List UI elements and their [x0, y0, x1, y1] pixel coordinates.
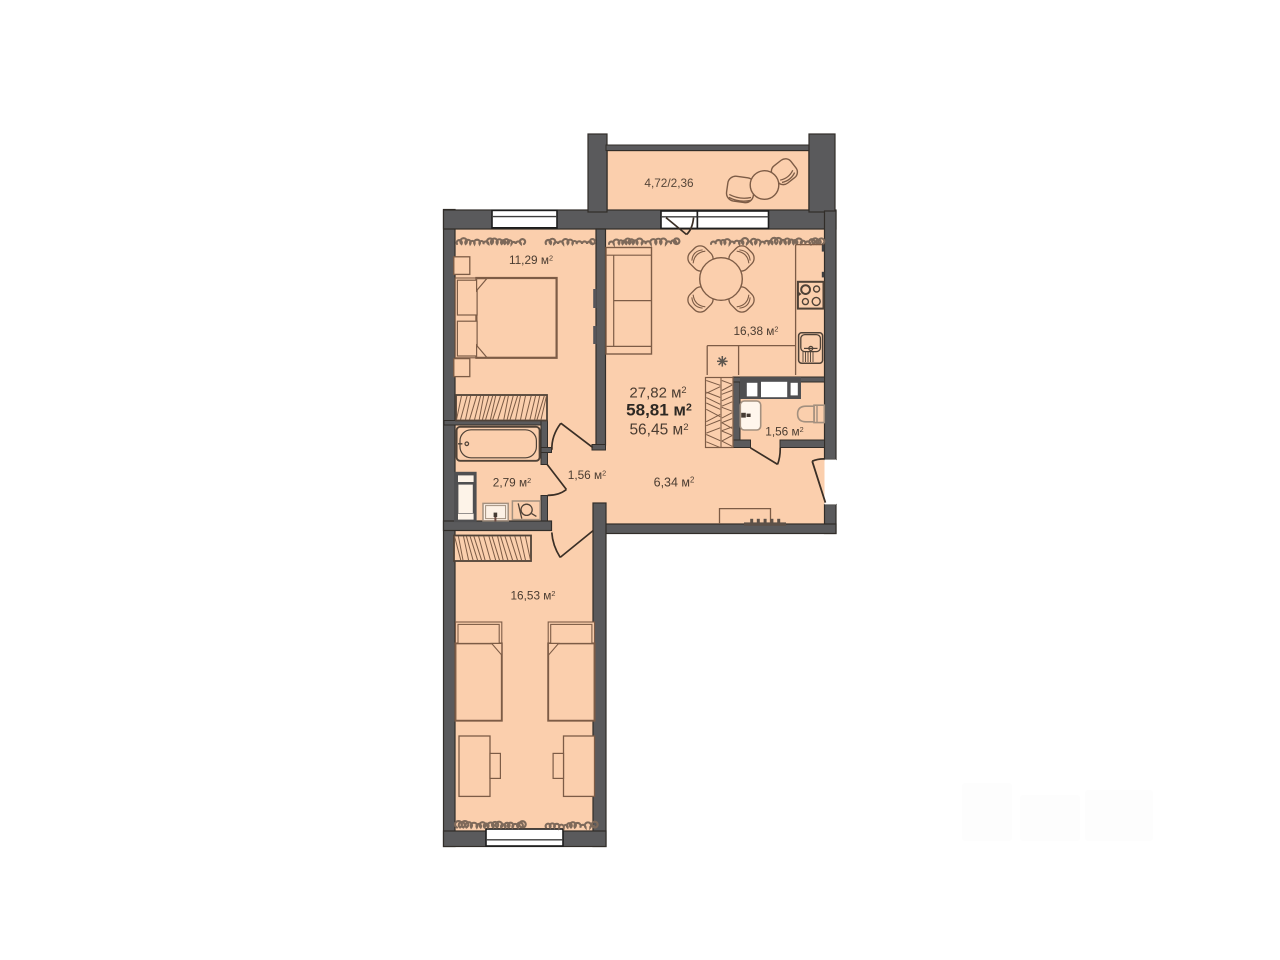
svg-text:16,38 м2: 16,38 м2 [734, 324, 779, 338]
svg-text:56,45 м2: 56,45 м2 [629, 422, 688, 439]
svg-text:6,34 м2: 6,34 м2 [654, 476, 695, 490]
svg-text:1,56 м2: 1,56 м2 [568, 468, 606, 482]
svg-text:58,81 м2: 58,81 м2 [626, 401, 692, 420]
svg-text:4,72/2,36: 4,72/2,36 [644, 176, 694, 190]
svg-text:27,82 м2: 27,82 м2 [629, 385, 686, 402]
svg-text:2,79 м2: 2,79 м2 [493, 476, 531, 490]
svg-text:16,53 м2: 16,53 м2 [511, 589, 556, 603]
svg-text:11,29 м2: 11,29 м2 [509, 253, 553, 267]
svg-text:1,56 м2: 1,56 м2 [765, 425, 803, 439]
